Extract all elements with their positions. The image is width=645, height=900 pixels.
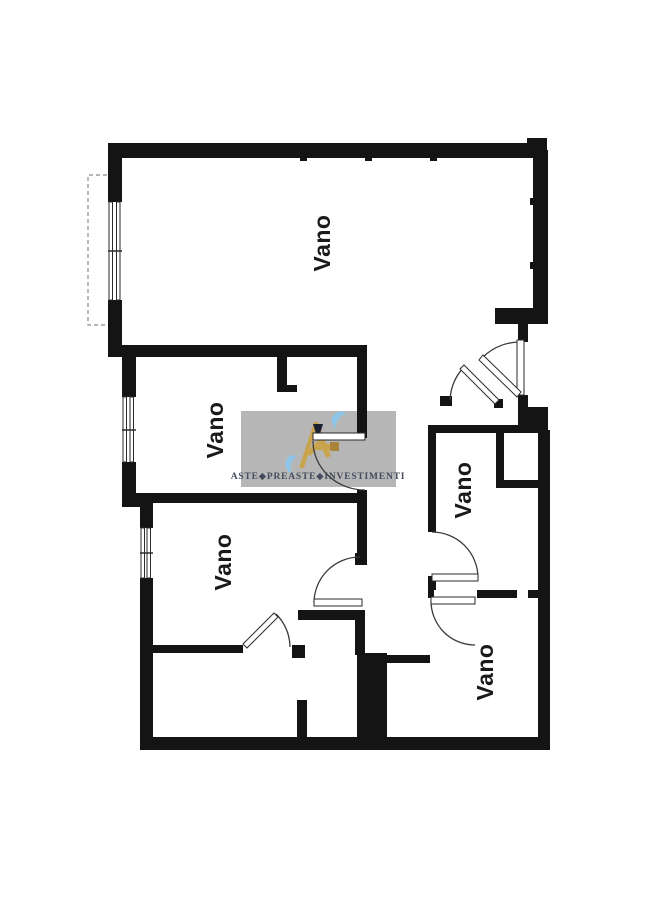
watermark: ASTE◆PREASTE◆INVESTIMENTI xyxy=(231,411,406,487)
room-label-bottom-right: Vano xyxy=(472,644,498,701)
room-label-bottom-left: Vano xyxy=(210,534,236,591)
wall-segment xyxy=(122,345,367,357)
wall-segment xyxy=(496,480,541,488)
wall-segment xyxy=(108,143,545,158)
wall-segment xyxy=(153,645,243,653)
wall-tick xyxy=(365,158,372,161)
wall-segment xyxy=(518,395,528,409)
window-icon xyxy=(140,528,153,578)
wall-segment xyxy=(133,493,367,503)
balcony-dashed-outline xyxy=(88,175,107,325)
door-leaf xyxy=(313,433,365,440)
wall-segment xyxy=(357,503,367,560)
wall-segment xyxy=(140,503,153,528)
wall-segment xyxy=(108,143,122,202)
door-leaf xyxy=(517,340,524,395)
room-label-right-middle: Vano xyxy=(450,462,476,519)
wall-segment xyxy=(430,425,548,433)
room-label-middle-left: Vano xyxy=(202,402,228,459)
door-arc xyxy=(432,532,478,578)
wall-segment xyxy=(292,645,305,658)
wall-segment xyxy=(357,345,367,438)
door-arc xyxy=(483,342,521,357)
door-leaf xyxy=(243,613,278,648)
wall-segment xyxy=(140,737,550,750)
window-icon xyxy=(108,202,122,300)
door-arc xyxy=(450,367,464,400)
floorplan-page: ASTE◆PREASTE◆INVESTIMENTI xyxy=(0,0,645,900)
room-label-top: Vano xyxy=(309,215,335,272)
wall-segment xyxy=(495,308,548,324)
wall-tick xyxy=(530,198,533,205)
wall-segment xyxy=(277,385,297,392)
window-icon xyxy=(122,397,136,462)
door-leaf xyxy=(431,597,475,604)
wall-segment xyxy=(518,322,528,342)
wall-segment xyxy=(298,610,363,620)
wall-segment xyxy=(533,150,548,312)
wall-segment xyxy=(382,655,430,663)
door-leaf xyxy=(314,599,362,606)
wall-segment xyxy=(122,355,136,397)
wall-segment xyxy=(496,433,504,482)
wall-segment xyxy=(355,610,365,655)
wall-segment xyxy=(428,425,436,532)
wall-segment xyxy=(538,430,550,749)
wall-tick xyxy=(530,262,533,269)
wall-tick xyxy=(430,158,437,161)
door-arc xyxy=(276,614,290,647)
floorplan-drawing: ASTE◆PREASTE◆INVESTIMENTI xyxy=(0,0,645,900)
wall-tick xyxy=(300,158,307,161)
door-leaf xyxy=(432,574,478,581)
wall-segment xyxy=(140,578,153,749)
brand-text: ASTE◆PREASTE◆INVESTIMENTI xyxy=(231,472,406,482)
wall-segment xyxy=(355,553,367,565)
wall-segment xyxy=(357,653,387,743)
wall-segment xyxy=(297,700,307,737)
door-arc xyxy=(314,557,360,603)
wall-segment xyxy=(528,590,540,598)
door-arc xyxy=(431,601,475,645)
wall-segment xyxy=(477,590,517,598)
